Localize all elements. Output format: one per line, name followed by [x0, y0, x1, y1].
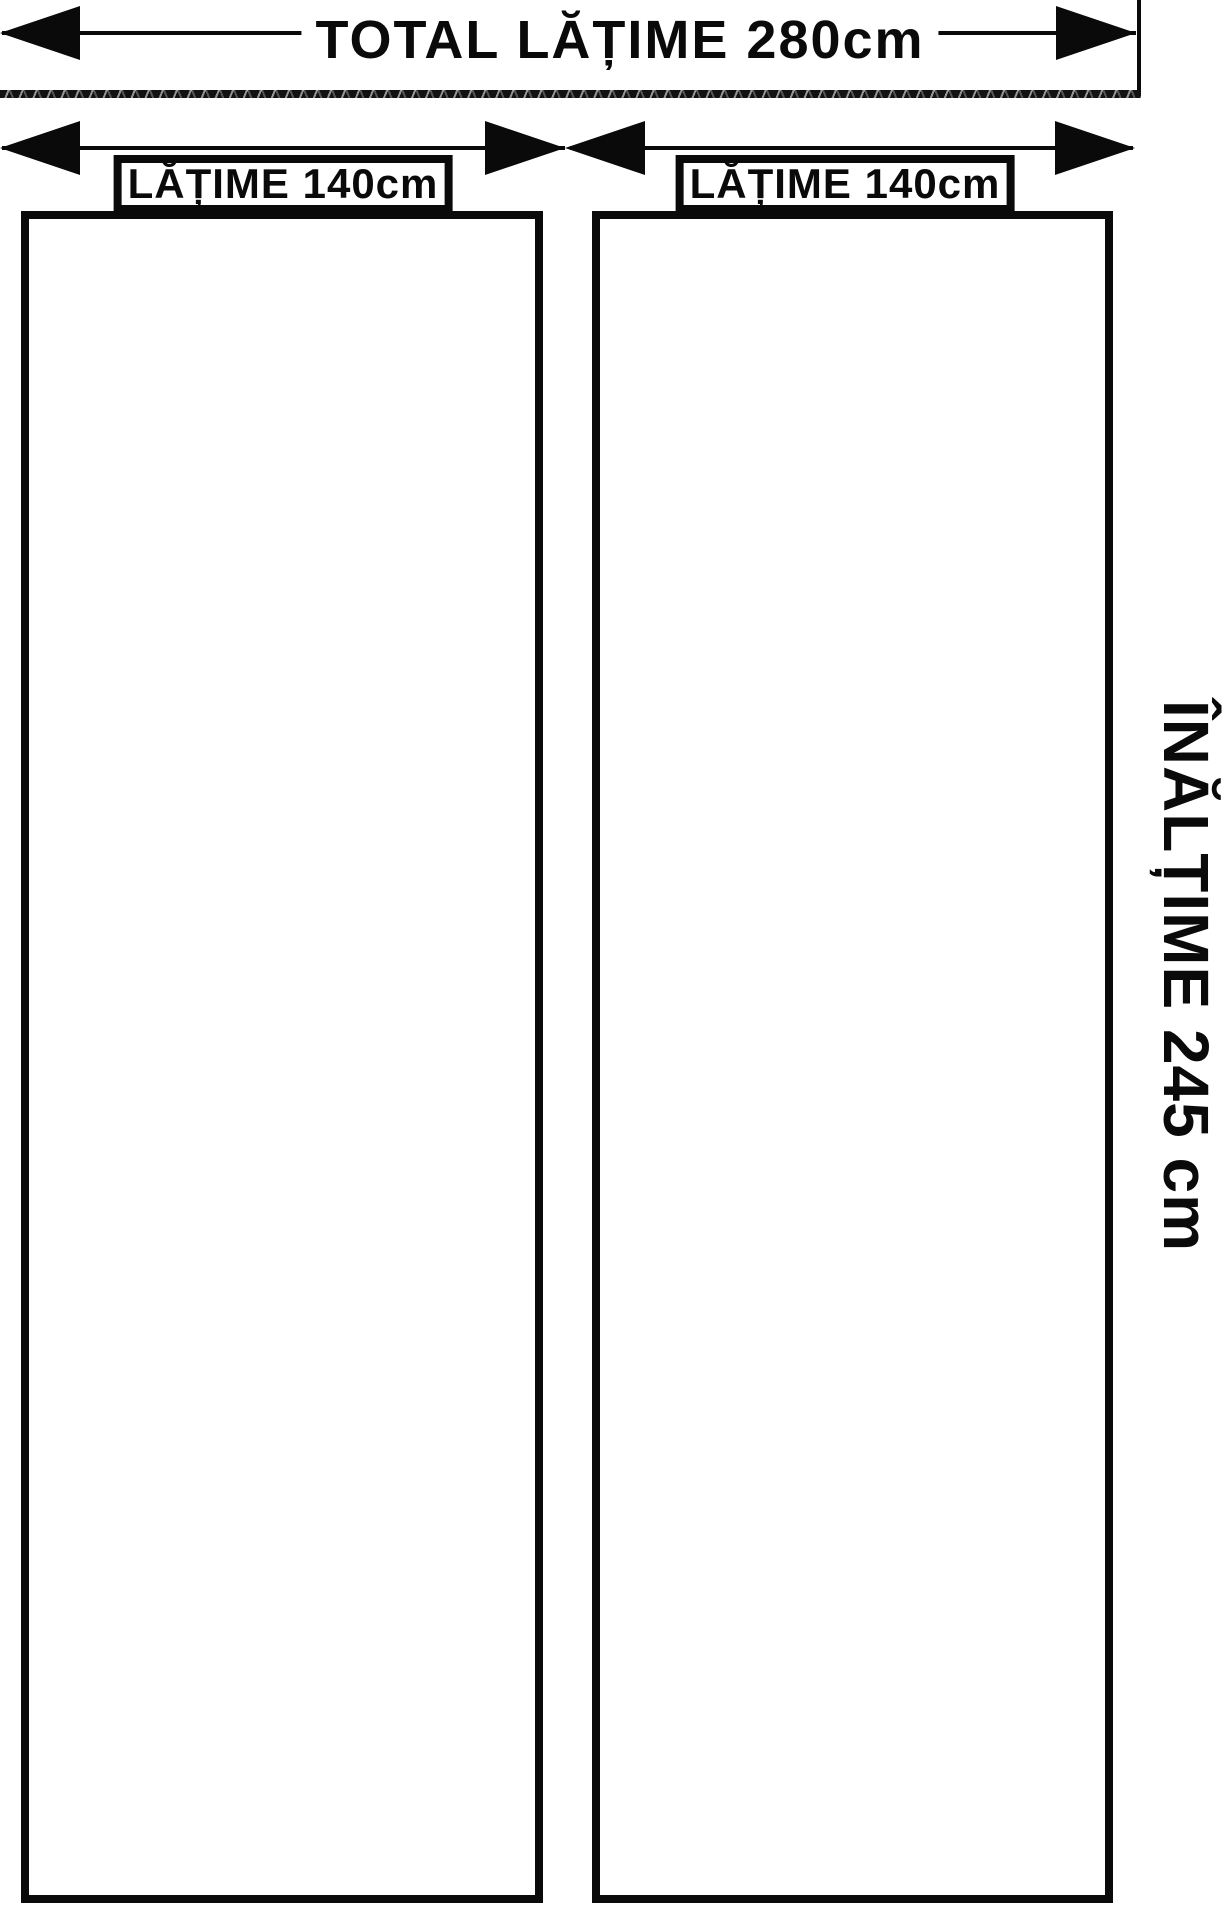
arrow-right-icon [1056, 6, 1136, 60]
arrow-left-icon [0, 121, 80, 175]
dimension-diagram: TOTAL LĂȚIME 280cm LĂȚIME 140cm LĂȚIME 1… [0, 0, 1228, 1920]
total-width-label: TOTAL LĂȚIME 280cm [301, 13, 938, 67]
left-panel-width-label: LĂȚIME 140cm [114, 155, 453, 213]
arrow-right-icon [485, 121, 565, 175]
right-panel-width-label: LĂȚIME 140cm [676, 155, 1015, 213]
right-boundary-line [1137, 0, 1141, 94]
height-label: ÎNĂLȚIME 245 cm [1154, 700, 1218, 1252]
right-panel-dimension-line [570, 146, 1133, 150]
arrow-right-icon [1055, 121, 1135, 175]
fabric-panel-right [592, 211, 1113, 1903]
left-panel-dimension-line [2, 146, 565, 150]
fabric-panel-left [21, 211, 543, 1903]
curtain-header-tape [0, 90, 1141, 98]
arrow-left-icon [0, 6, 80, 60]
arrow-left-icon [565, 121, 645, 175]
